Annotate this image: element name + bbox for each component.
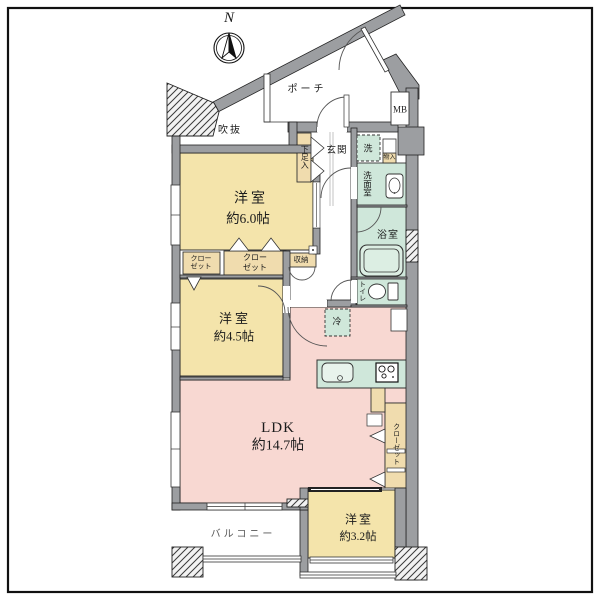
right-wall <box>406 88 418 580</box>
label-washroom: 洗面室 <box>363 171 372 197</box>
bedroom-6-name: 洋室 <box>234 193 268 208</box>
ldk-wall-hatch <box>287 499 308 507</box>
label-void: 吹抜 <box>218 126 242 137</box>
entrance-door-gap <box>317 122 347 132</box>
label-porch: ポーチ <box>288 85 327 96</box>
label-balcony: バルコニー <box>211 530 276 541</box>
label-entrance: 玄関 <box>326 147 347 157</box>
bathtub-icon <box>360 245 403 276</box>
counter-end-box <box>367 414 382 426</box>
label-storage: 収納 <box>294 256 309 264</box>
diagonal-wall <box>213 5 405 112</box>
label-washer: 洗 <box>363 144 372 153</box>
entrance-step-line <box>330 132 333 206</box>
bedroom-45-door-gap <box>283 286 290 313</box>
bedroom-32-east-wall <box>395 488 406 548</box>
right-wall-bump <box>398 127 424 155</box>
compass-north-label: N <box>224 11 234 27</box>
floor-plan: N ポーチ 吹抜 MB 玄関 下足入 洗 物入 洗面室 浴室 トイレ 冷 収納 … <box>0 0 600 600</box>
label-shoe-cabinet: 下足入 <box>300 145 308 169</box>
closet-b-line2: ゼット <box>243 264 267 272</box>
bedroom-45-floor <box>180 279 283 376</box>
washbasin-icon <box>386 174 403 198</box>
balcony-corner-hatch-right <box>395 547 427 580</box>
compass-icon <box>214 33 244 63</box>
kitchen-sink-icon <box>322 363 353 382</box>
storage-door-arc-left <box>289 267 302 280</box>
washroom-bath-wall <box>357 205 407 207</box>
closet-shelf-2 <box>387 468 405 472</box>
bedroom-32-size: 約3.2帖 <box>339 531 376 543</box>
laundry-pan-box <box>383 139 396 153</box>
label-bathroom: 浴室 <box>377 231 399 242</box>
bedroom-32-name: 洋室 <box>345 514 373 527</box>
bedroom-6-top-wall <box>172 145 313 153</box>
bedroom-45-size: 約4.5帖 <box>214 330 255 343</box>
porch-void-divider <box>264 74 270 122</box>
washroom-door-gap <box>351 167 357 199</box>
balcony-divider-wall <box>300 510 308 576</box>
bath-toilet-wall <box>351 277 407 279</box>
bedroom-45-window <box>171 303 180 350</box>
bedroom-45-ldk-wall <box>180 377 283 380</box>
diagonal-wall-end-hatch <box>167 83 219 136</box>
right-wall-hatch <box>406 230 418 262</box>
balcony-corner-hatch-left <box>172 547 203 577</box>
label-meter-box: MB <box>393 105 407 114</box>
storage-door-arc-right <box>302 267 315 280</box>
toilet-ldk-wall <box>351 305 407 307</box>
label-small-storage: 物入 <box>383 155 395 161</box>
closet-a-line2: ゼット <box>191 263 212 270</box>
bedroom-6-size: 約6.0帖 <box>226 212 270 226</box>
room-fills <box>180 153 407 558</box>
washroom-door-arc <box>321 168 351 198</box>
stove-icon <box>376 363 398 382</box>
bedroom-45-name: 洋室 <box>219 312 251 326</box>
label-fridge: 冷 <box>332 317 341 326</box>
pipe-space-box <box>391 309 407 331</box>
kitchen-cabinet-box <box>371 388 385 412</box>
ldk-side-window <box>171 412 180 487</box>
closet-c-label: クローゼット <box>392 423 399 465</box>
shoe-cabinet-door-1 <box>311 137 324 159</box>
ldk-name: LDK <box>261 421 295 437</box>
toilet-door-gap <box>351 280 357 303</box>
ldk-size: 約14.7帖 <box>252 440 305 455</box>
closet-b-line1: クロー <box>243 254 267 262</box>
ldk-door-gap <box>288 300 327 307</box>
entrance-door-leaf <box>344 95 349 127</box>
porch-gate-leaf <box>361 27 389 72</box>
toilet-door-arc <box>331 280 352 301</box>
label-toilet: トイレ <box>358 281 365 302</box>
